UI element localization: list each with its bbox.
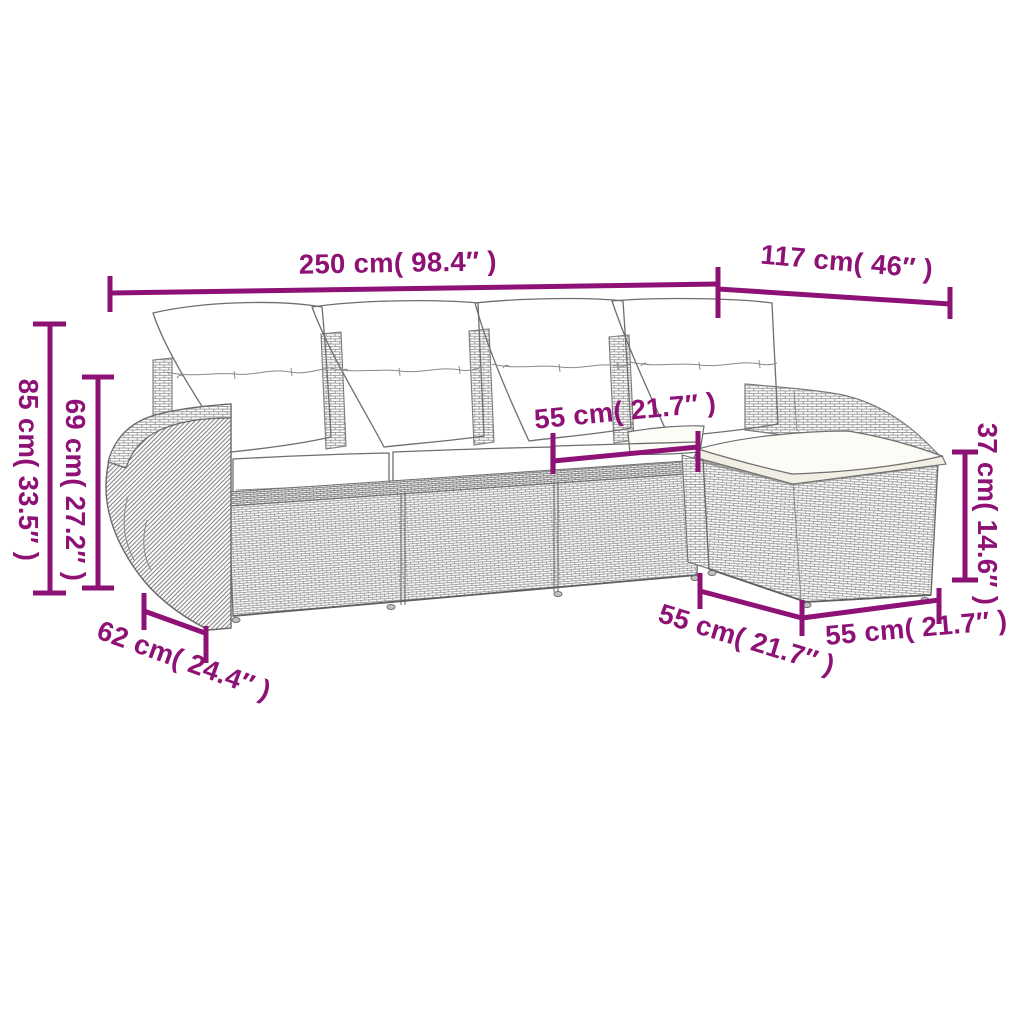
- product-dimension-diagram: 250 cm( 98.4″ ) 117 cm( 46″ ) 85 cm( 33.…: [0, 0, 1024, 1024]
- dim-label-overall-width: 250 cm( 98.4″ ): [299, 245, 498, 279]
- dim-label-ottoman-height: 37 cm( 14.6″ ): [972, 423, 1003, 605]
- sofa-dimension-illustration: 250 cm( 98.4″ ) 117 cm( 46″ ) 85 cm( 33.…: [0, 0, 1024, 1024]
- dim-label-overall-height: 85 cm( 33.5″ ): [13, 379, 44, 561]
- ottoman: [694, 431, 946, 602]
- dim-label-backrest-height: 69 cm( 27.2″ ): [60, 399, 91, 581]
- frame-post: [153, 358, 172, 417]
- frame-post: [321, 332, 346, 449]
- dim-label-chaise-depth: 117 cm( 46″ ): [759, 239, 934, 285]
- dimension-chaise-depth: [718, 287, 950, 319]
- dim-label-ottoman-width: 55 cm( 21.7″ ): [655, 597, 839, 680]
- sofa-illustration: [106, 299, 946, 630]
- left-armrest: [106, 404, 231, 630]
